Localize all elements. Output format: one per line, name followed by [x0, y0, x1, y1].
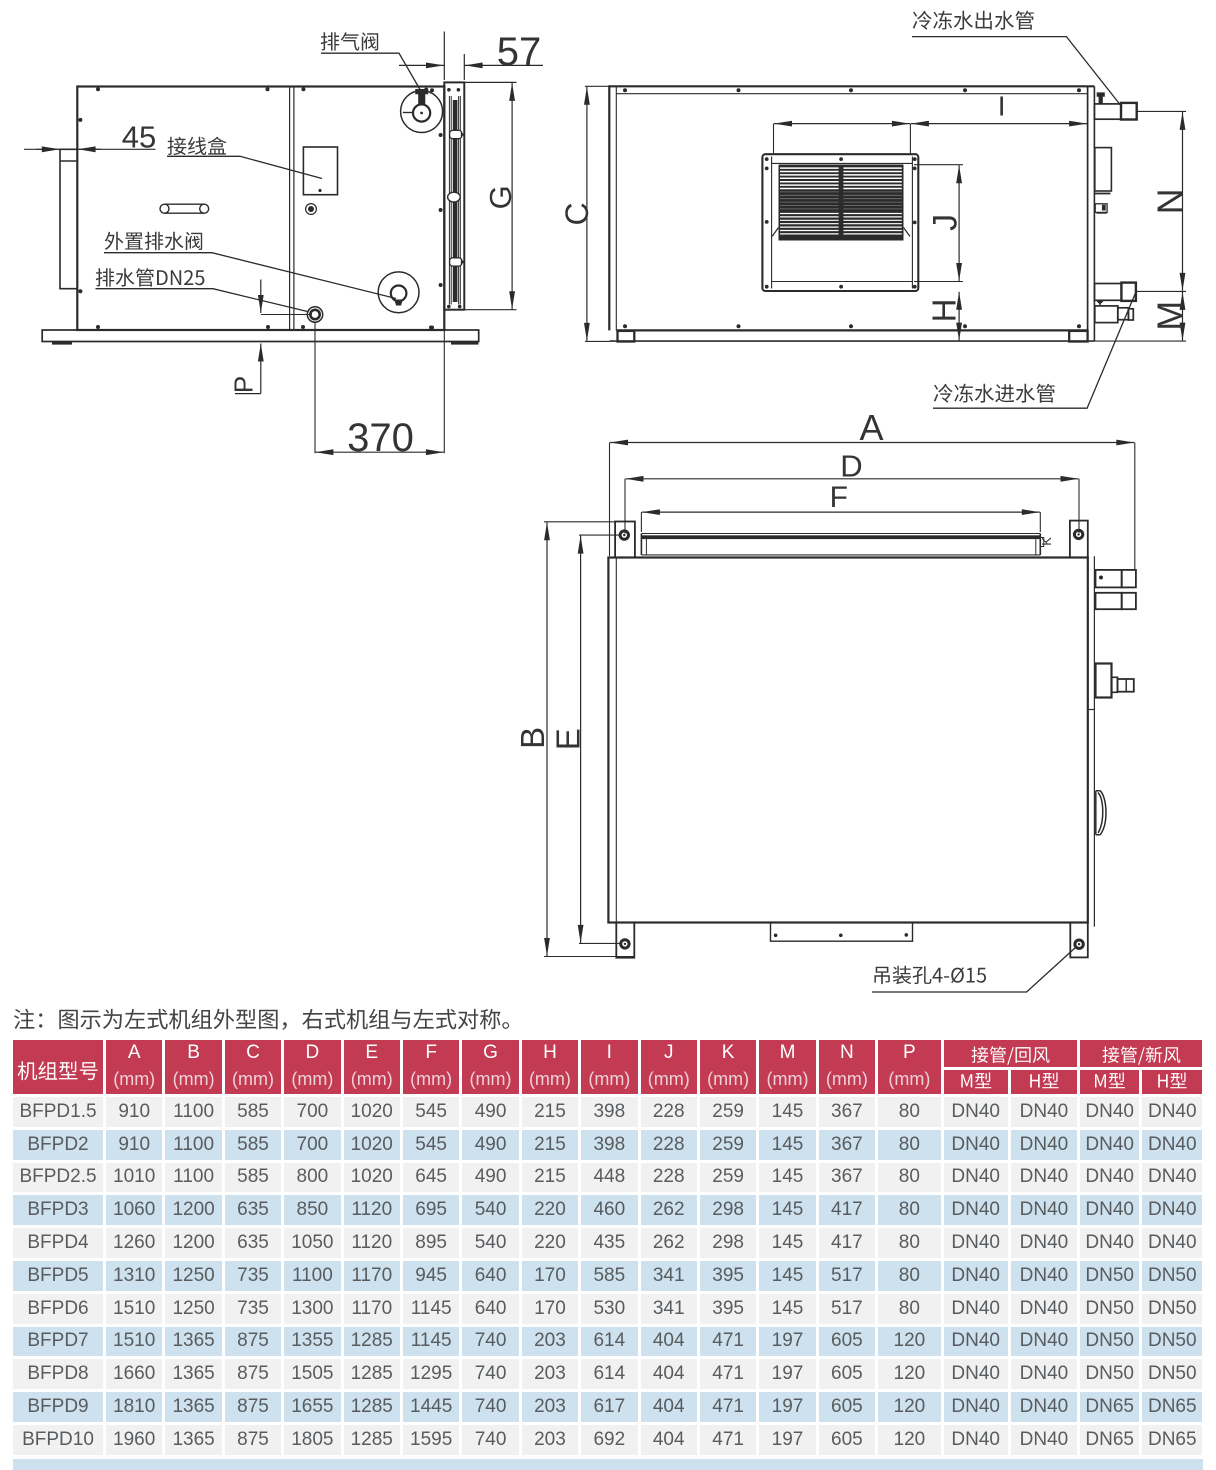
svg-text:45: 45	[122, 120, 156, 155]
svg-text:M: M	[1150, 301, 1191, 331]
svg-text:370: 370	[347, 416, 414, 460]
svg-text:C: C	[559, 202, 595, 225]
svg-text:N: N	[1150, 188, 1191, 214]
svg-text:57: 57	[497, 30, 542, 74]
svg-text:J: J	[927, 214, 965, 231]
svg-text:B: B	[514, 727, 551, 749]
svg-text:G: G	[483, 185, 518, 209]
svg-text:I: I	[998, 91, 1006, 122]
svg-text:A: A	[859, 407, 883, 448]
svg-text:D: D	[840, 449, 862, 484]
svg-text:H: H	[926, 299, 963, 323]
svg-text:K: K	[1039, 537, 1054, 546]
svg-text:E: E	[549, 728, 586, 750]
svg-text:F: F	[830, 481, 848, 514]
svg-text:P: P	[229, 376, 259, 393]
